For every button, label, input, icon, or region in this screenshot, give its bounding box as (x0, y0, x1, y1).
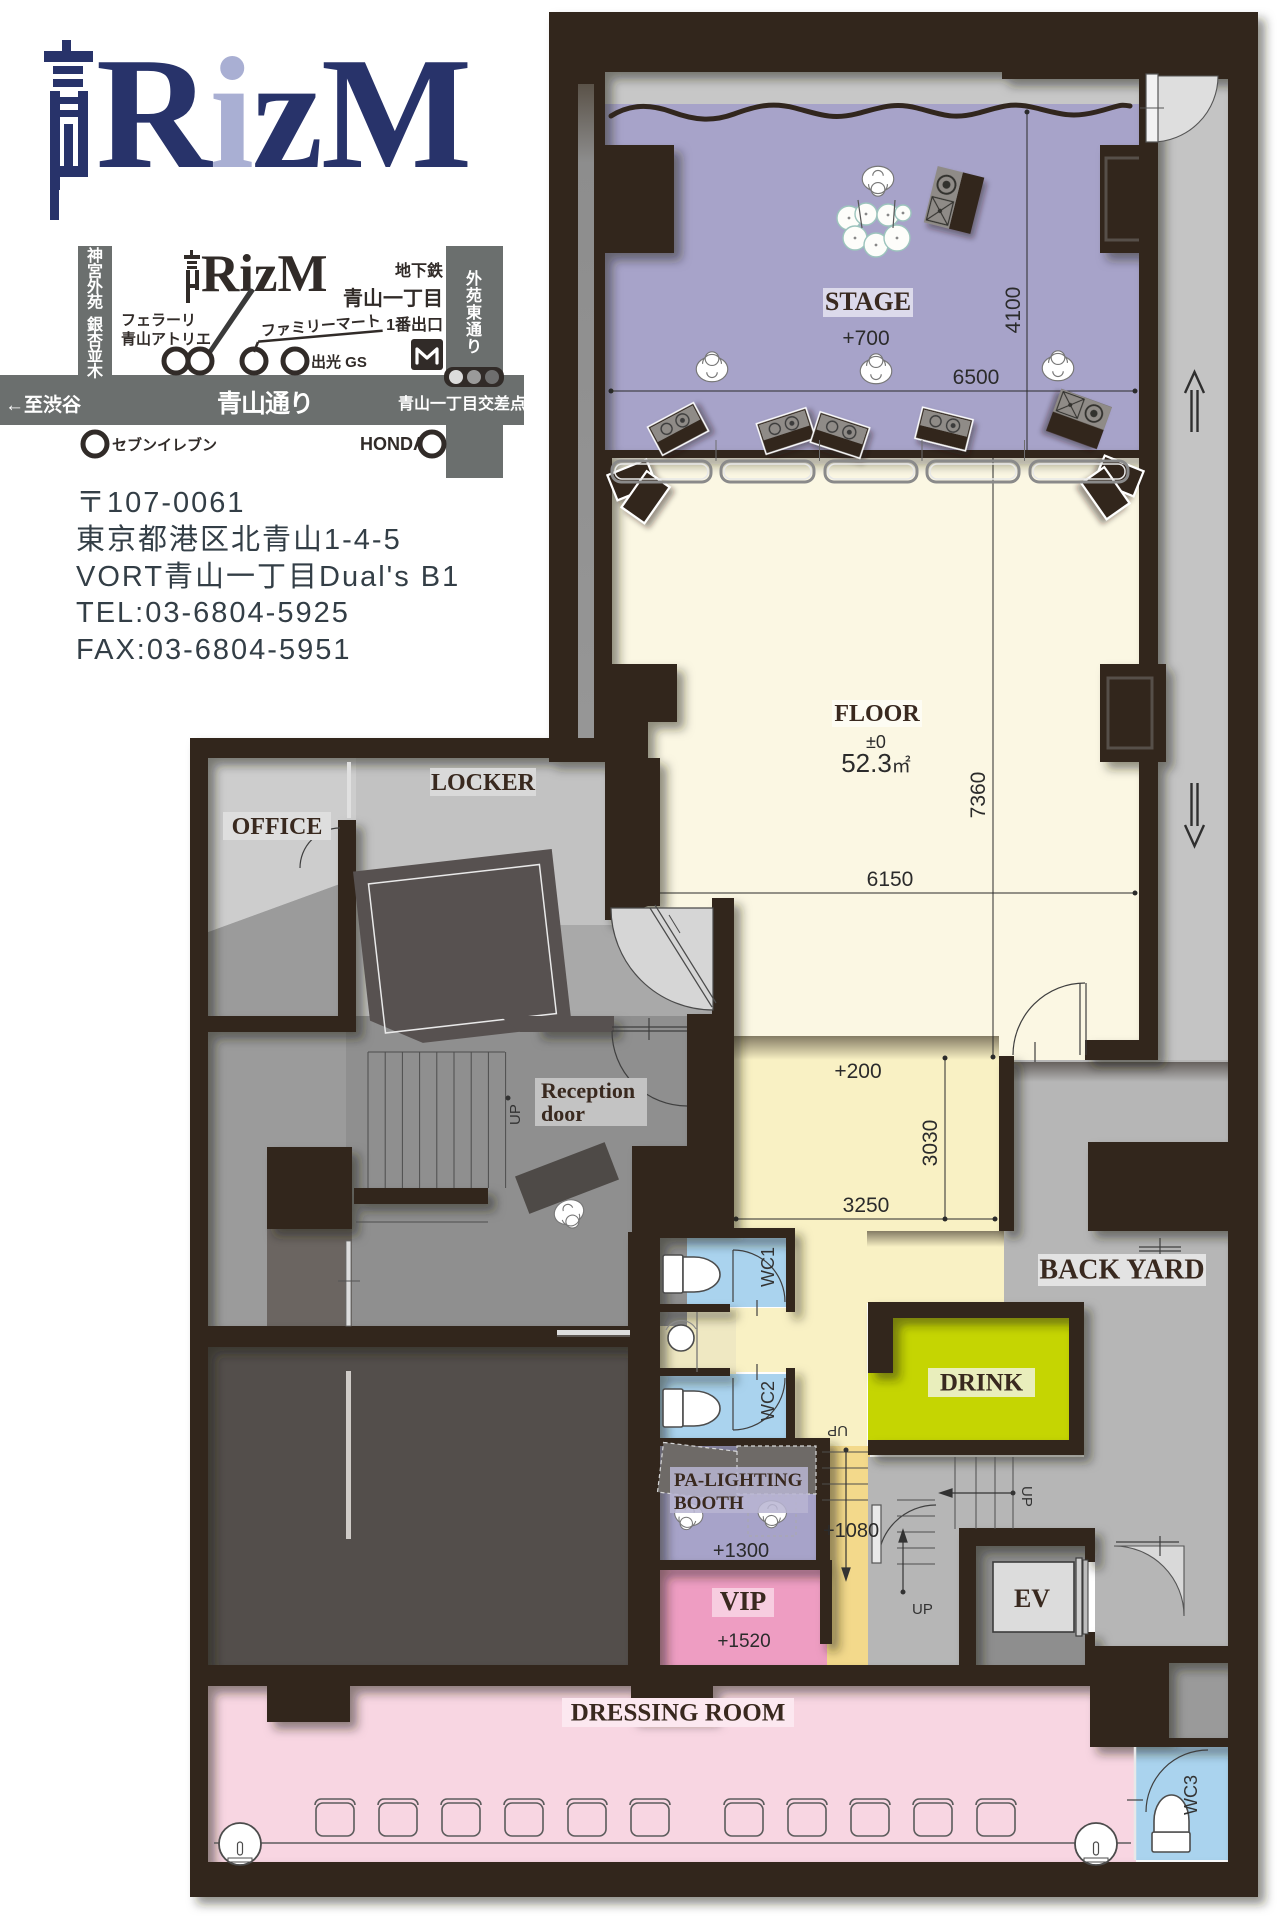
svg-text:セブンイレブン: セブンイレブン (112, 436, 217, 454)
svg-text:Reception: Reception (541, 1078, 635, 1103)
svg-text:+700: +700 (842, 327, 889, 350)
svg-text:神宮外苑: 神宮外苑 (86, 246, 103, 312)
svg-text:青山一丁目: 青山一丁目 (343, 287, 443, 310)
svg-text:VORT青山一丁目Dual's B1: VORT青山一丁目Dual's B1 (76, 560, 460, 593)
svg-text:出光 GS: 出光 GS (311, 353, 367, 371)
svg-text:銀杏並木: 銀杏並木 (86, 315, 104, 381)
svg-text:UP: UP (1018, 1486, 1035, 1507)
svg-text:3030: 3030 (919, 1120, 942, 1167)
svg-text:外苑東通り: 外苑東通り (465, 269, 482, 356)
svg-text:6150: 6150 (867, 868, 914, 891)
svg-text:WC2: WC2 (758, 1381, 778, 1421)
svg-text:東京都港区北青山1-4-5: 東京都港区北青山1-4-5 (76, 523, 402, 556)
svg-text:4100: 4100 (1002, 287, 1025, 334)
svg-text:UP: UP (827, 1422, 848, 1439)
svg-text:PA-LIGHTING: PA-LIGHTING (674, 1470, 803, 1491)
svg-text:3250: 3250 (843, 1194, 890, 1217)
svg-text:HONDA: HONDA (360, 434, 426, 454)
svg-text:青山一丁目交差点: 青山一丁目交差点 (398, 394, 526, 413)
svg-text:VIP: VIP (720, 1586, 767, 1616)
svg-text:+1520: +1520 (717, 1631, 770, 1652)
svg-text:UP: UP (507, 1104, 524, 1125)
svg-text:OFFICE: OFFICE (232, 814, 323, 840)
svg-text:+1300: +1300 (713, 1540, 769, 1562)
svg-text:WC1: WC1 (758, 1247, 778, 1287)
svg-text:BACK YARD: BACK YARD (1039, 1255, 1204, 1286)
svg-text:FLOOR: FLOOR (834, 701, 920, 727)
svg-text:+1080: +1080 (823, 1520, 879, 1542)
svg-text:RizM: RizM (96, 24, 470, 202)
svg-text:door: door (541, 1101, 585, 1126)
svg-text:フェラーリ: フェラーリ (121, 312, 196, 329)
svg-text:青山通り: 青山通り (217, 390, 313, 418)
svg-text:RizM: RizM (201, 245, 328, 303)
svg-text:STAGE: STAGE (825, 287, 911, 316)
svg-text:TEL:03-6804-5925: TEL:03-6804-5925 (76, 597, 350, 629)
svg-text:FAX:03-6804-5951: FAX:03-6804-5951 (76, 634, 351, 666)
svg-text:WC3: WC3 (1181, 1775, 1201, 1815)
svg-text:+200: +200 (834, 1060, 881, 1083)
svg-text:7360: 7360 (967, 772, 990, 819)
svg-text:1番出口: 1番出口 (386, 315, 443, 334)
svg-text:UP: UP (912, 1601, 933, 1618)
svg-text:DRINK: DRINK (940, 1370, 1024, 1397)
svg-text:6500: 6500 (953, 366, 1000, 389)
svg-text:地下鉄: 地下鉄 (395, 261, 443, 280)
svg-text:〒107-0061: 〒107-0061 (76, 487, 246, 519)
svg-text:BOOTH: BOOTH (674, 1493, 744, 1514)
svg-text:DRESSING ROOM: DRESSING ROOM (571, 1700, 786, 1727)
svg-text:青山アトリエ: 青山アトリエ (121, 330, 211, 348)
svg-text:←至渋谷: ←至渋谷 (5, 393, 82, 416)
svg-text:EV: EV (1014, 1584, 1050, 1613)
svg-text:LOCKER: LOCKER (431, 770, 536, 796)
